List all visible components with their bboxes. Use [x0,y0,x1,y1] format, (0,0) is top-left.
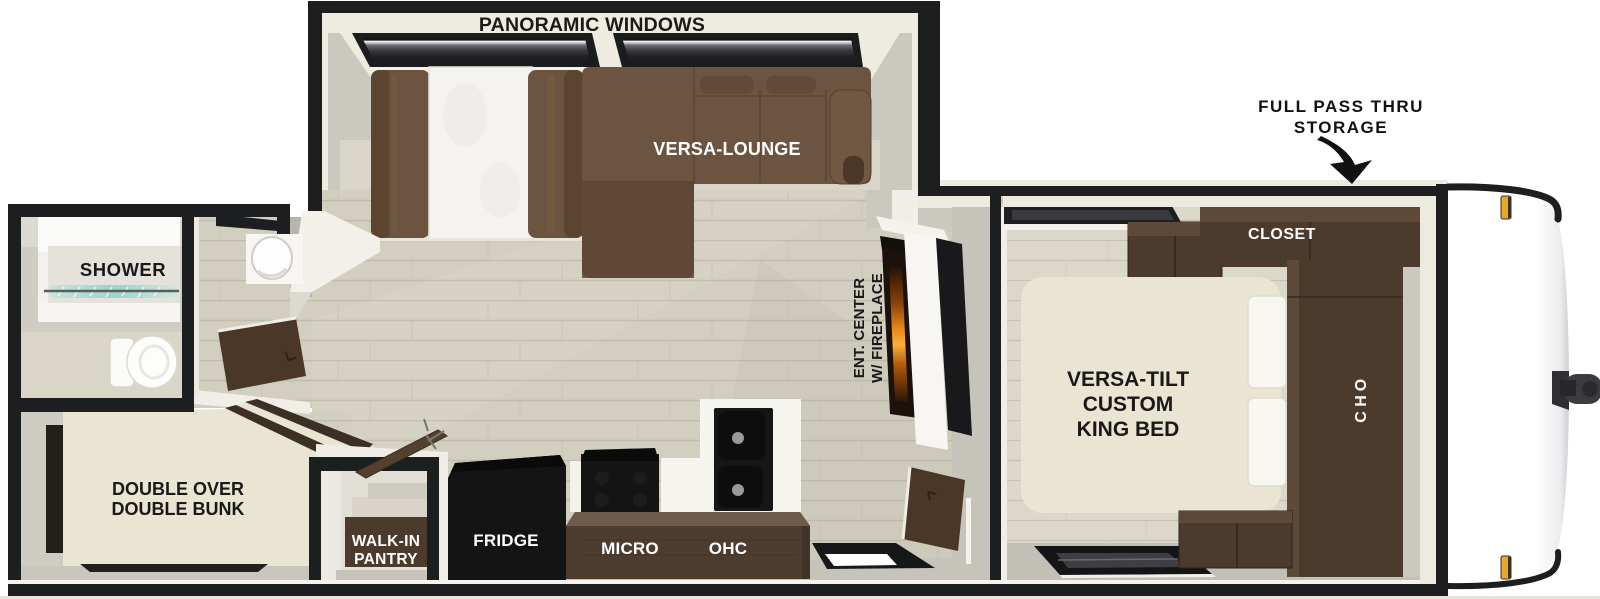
svg-text:DOUBLE BUNK: DOUBLE BUNK [112,499,245,519]
svg-text:VERSA-LOUNGE: VERSA-LOUNGE [653,139,800,159]
svg-text:W/ FIREPLACE: W/ FIREPLACE [869,273,886,383]
svg-text:STORAGE: STORAGE [1294,118,1388,137]
svg-text:H: H [1353,395,1370,407]
svg-text:C: C [1353,411,1370,423]
svg-text:PANTRY: PANTRY [354,551,418,568]
svg-text:CUSTOM: CUSTOM [1083,393,1174,416]
svg-text:PANORAMIC WINDOWS: PANORAMIC WINDOWS [479,14,705,36]
svg-text:DOUBLE OVER: DOUBLE OVER [112,479,244,499]
svg-text:VERSA-TILT: VERSA-TILT [1067,368,1189,391]
svg-text:FRIDGE: FRIDGE [473,531,538,550]
svg-text:OHC: OHC [709,539,747,558]
svg-text:MICRO: MICRO [601,539,659,558]
svg-text:ENT. CENTER: ENT. CENTER [851,278,868,379]
svg-text:SHOWER: SHOWER [80,259,166,280]
svg-text:CLOSET: CLOSET [1248,226,1316,243]
svg-text:KING BED: KING BED [1077,418,1180,441]
svg-text:WALK-IN: WALK-IN [352,533,420,550]
svg-text:FULL PASS THRU: FULL PASS THRU [1258,97,1424,116]
svg-text:O: O [1353,379,1370,391]
